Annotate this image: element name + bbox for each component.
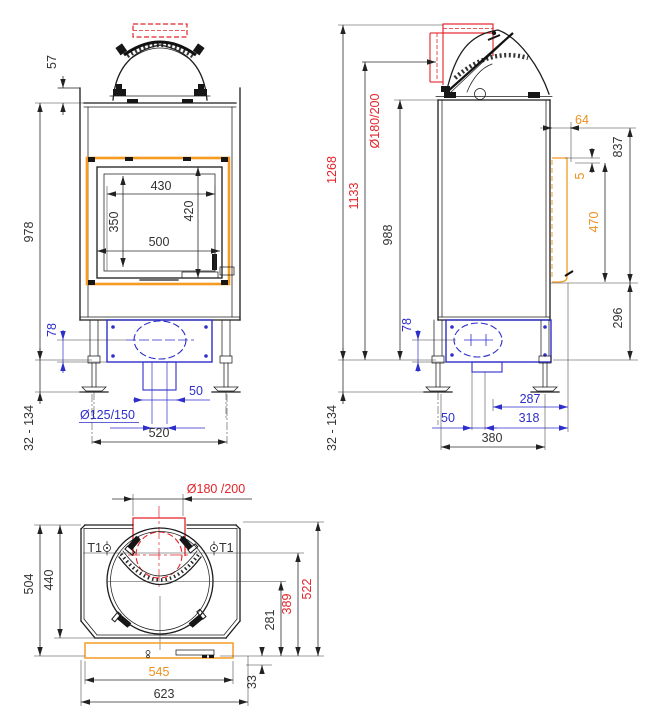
top-front-strip — [85, 643, 233, 658]
side-dim-32-134: 32 - 134 — [325, 405, 339, 451]
front-dim-350: 350 — [107, 212, 121, 233]
top-dim-522: 522 — [300, 579, 314, 600]
front-legs — [80, 320, 240, 420]
top-dim-545: 545 — [149, 665, 170, 679]
side-dim-50: 50 — [441, 411, 455, 425]
side-dim-287: 287 — [520, 392, 541, 406]
side-dim-470: 470 — [587, 212, 601, 233]
side-dimensions-right: 64 5 470 837 296 — [540, 113, 638, 360]
top-dim-diameter-180-200: Ø180 /200 — [187, 482, 245, 496]
front-dim-diameter-125-150: Ø125/150 — [80, 408, 135, 422]
side-dim-5: 5 — [573, 172, 587, 179]
technical-drawing-page: 430 350 420 500 57 — [0, 0, 657, 712]
side-flue-pipe — [430, 24, 493, 85]
side-dim-380: 380 — [482, 431, 503, 445]
front-dim-78: 78 — [45, 323, 59, 337]
side-dim-988: 988 — [381, 225, 395, 246]
side-dim-1133: 1133 — [347, 183, 361, 210]
top-view: Ø180 /200 — [22, 482, 324, 706]
t1-left-label: T1 — [87, 541, 102, 555]
top-dim-440: 440 — [42, 570, 56, 591]
side-view: 1268 1133 988 Ø180/200 32 - 134 64 5 470… — [325, 24, 638, 451]
top-dim-33: 33 — [245, 675, 259, 689]
side-dim-diameter-180-200: Ø180/200 — [368, 94, 382, 149]
front-dim-420: 420 — [182, 201, 196, 222]
side-dim-318: 318 — [519, 411, 540, 425]
front-dimensions-inner: 430 350 420 500 — [97, 167, 220, 278]
side-hood — [441, 30, 549, 94]
front-dim-978: 978 — [22, 222, 36, 243]
t1-sensor-left: T1 — [87, 541, 110, 555]
front-dim-50: 50 — [189, 384, 203, 398]
top-dim-281: 281 — [263, 610, 277, 631]
front-dimensions-outer: 57 978 32 - 134 78 50 Ø125/150 520 — [22, 55, 227, 451]
side-dim-837: 837 — [611, 137, 625, 158]
top-dim-504: 504 — [22, 574, 36, 595]
front-dim-32-134: 32 - 134 — [22, 405, 36, 451]
front-dim-500: 500 — [149, 235, 170, 249]
front-flue-collar — [110, 24, 210, 100]
front-door-latch — [212, 254, 217, 270]
t1-sensor-right: T1 — [211, 541, 234, 555]
side-body-outline — [436, 89, 552, 321]
side-dim-1268: 1268 — [325, 156, 339, 184]
fireplace-dimension-drawing: 430 350 420 500 57 — [0, 0, 657, 712]
front-dim-57: 57 — [45, 55, 59, 69]
top-dim-623: 623 — [154, 687, 175, 701]
top-dim-389: 389 — [280, 594, 294, 615]
front-dim-430: 430 — [151, 179, 172, 193]
side-dim-64: 64 — [575, 113, 589, 127]
side-dim-296: 296 — [611, 308, 625, 329]
top-handle — [176, 650, 214, 655]
side-dim-78: 78 — [400, 318, 414, 332]
front-door-handle — [182, 272, 218, 278]
side-damper-knob — [475, 89, 486, 100]
front-dim-520: 520 — [149, 426, 170, 440]
front-view: 430 350 420 500 57 — [22, 24, 240, 451]
t1-right-label: T1 — [219, 541, 234, 555]
top-dimensions: 504 440 522 389 281 33 545 623 — [22, 522, 324, 706]
side-dimensions-left: 1268 1133 988 Ø180/200 32 - 134 — [325, 25, 443, 451]
side-rear-shield — [552, 158, 573, 282]
